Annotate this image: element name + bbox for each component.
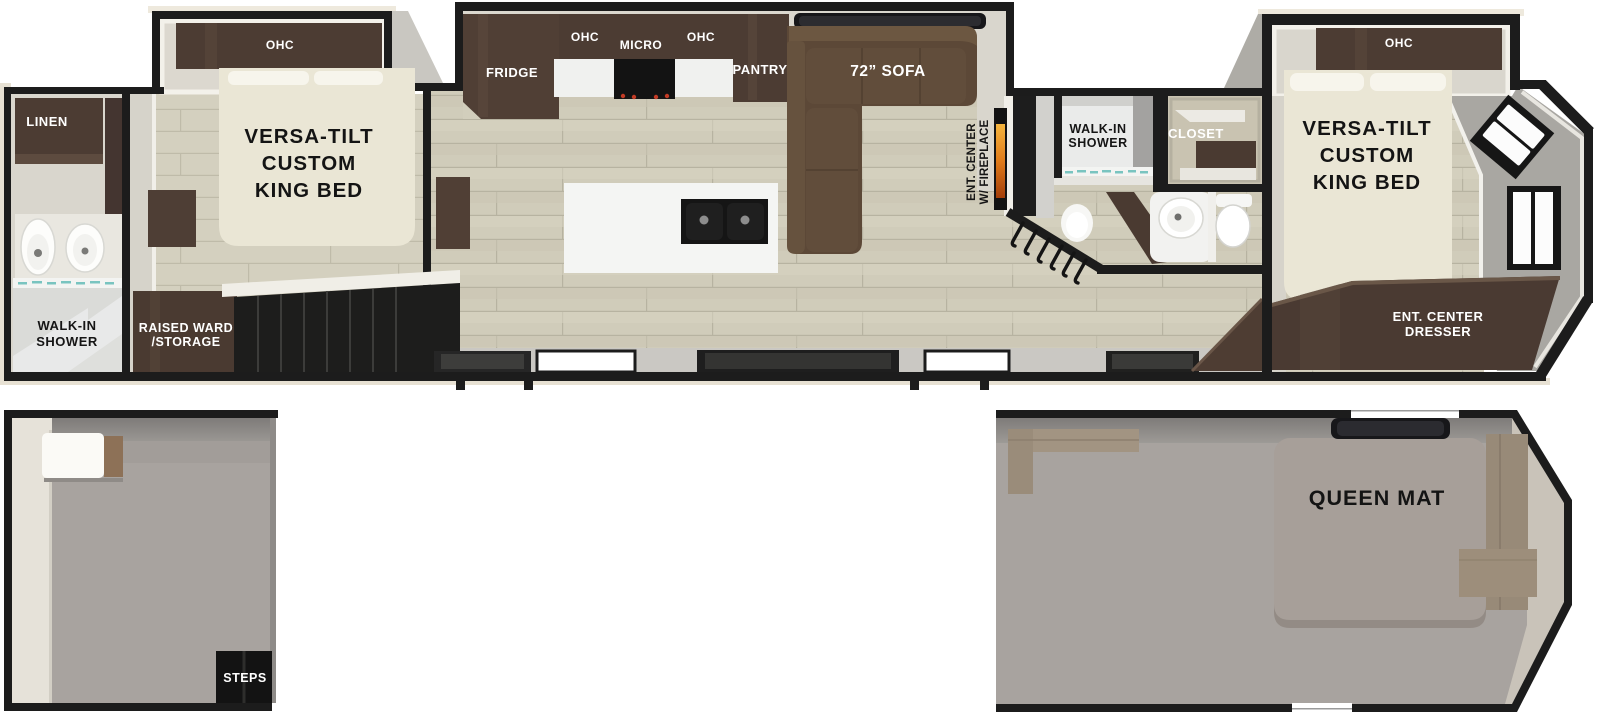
svg-text:CLOSET: CLOSET bbox=[1168, 126, 1224, 141]
svg-text:FRIDGE: FRIDGE bbox=[486, 65, 538, 80]
svg-text:WALK-IN: WALK-IN bbox=[37, 318, 96, 333]
svg-text:STEPS: STEPS bbox=[223, 671, 267, 685]
svg-text:/STORAGE: /STORAGE bbox=[151, 335, 220, 349]
svg-text:WALK-IN: WALK-IN bbox=[1070, 122, 1127, 136]
svg-text:W/ FIREPLACE: W/ FIREPLACE bbox=[979, 119, 991, 204]
svg-text:VERSA-TILT: VERSA-TILT bbox=[1302, 117, 1431, 140]
svg-text:OHC: OHC bbox=[1385, 36, 1413, 50]
svg-text:CUSTOM: CUSTOM bbox=[1320, 144, 1414, 167]
svg-text:ENT. CENTER: ENT. CENTER bbox=[966, 123, 978, 201]
svg-text:DRESSER: DRESSER bbox=[1405, 324, 1471, 339]
svg-text:QUEEN MAT: QUEEN MAT bbox=[1309, 486, 1445, 510]
svg-text:OHC: OHC bbox=[571, 30, 599, 44]
svg-text:KING BED: KING BED bbox=[1313, 171, 1421, 194]
svg-text:KING BED: KING BED bbox=[255, 179, 363, 202]
svg-text:RAISED WARD: RAISED WARD bbox=[139, 321, 233, 335]
svg-text:OHC: OHC bbox=[687, 30, 715, 44]
svg-text:VERSA-TILT: VERSA-TILT bbox=[244, 125, 373, 148]
svg-text:SHOWER: SHOWER bbox=[36, 334, 98, 349]
svg-text:OHC: OHC bbox=[266, 38, 294, 52]
svg-text:PANTRY: PANTRY bbox=[733, 62, 788, 77]
svg-text:ENT. CENTER: ENT. CENTER bbox=[1393, 309, 1484, 324]
svg-text:72” SOFA: 72” SOFA bbox=[850, 63, 926, 80]
svg-text:MICRO: MICRO bbox=[620, 38, 663, 52]
svg-text:SHOWER: SHOWER bbox=[1068, 136, 1127, 150]
svg-text:CUSTOM: CUSTOM bbox=[262, 152, 356, 175]
svg-text:LINEN: LINEN bbox=[26, 114, 68, 129]
